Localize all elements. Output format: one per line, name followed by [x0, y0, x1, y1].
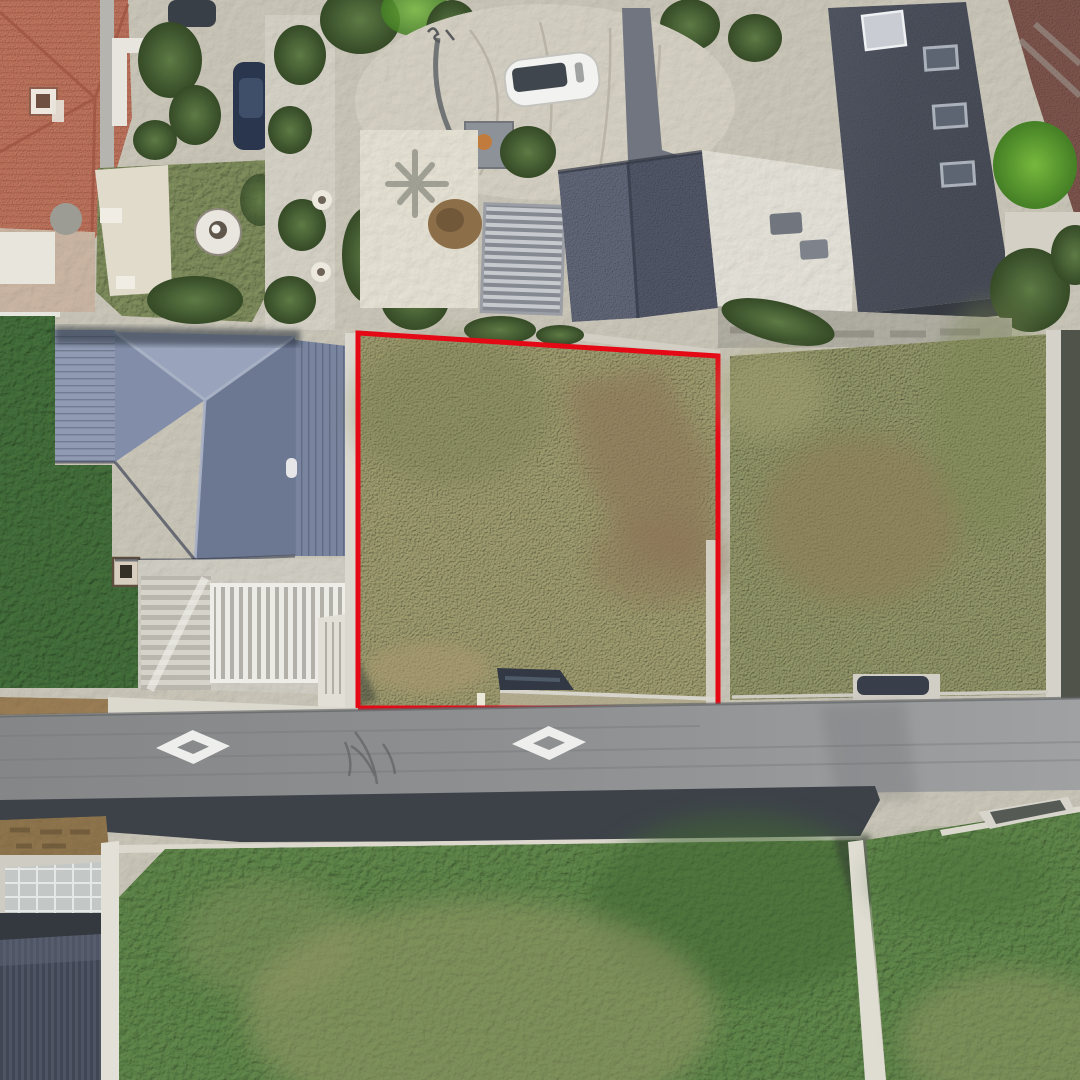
- haze-overlay: [0, 0, 1080, 1080]
- satellite-map-canvas[interactable]: [0, 0, 1080, 1080]
- satellite-image: [0, 0, 1080, 1080]
